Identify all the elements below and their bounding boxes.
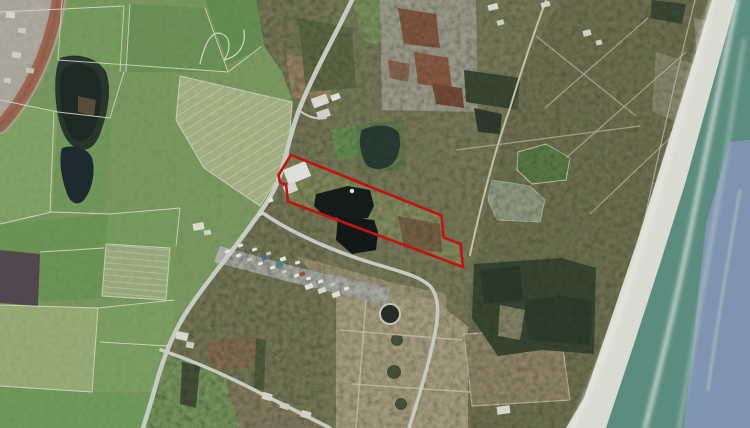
- scrub-patch: [298, 18, 356, 92]
- striped-field-rows: [102, 244, 170, 300]
- dark-tilled-field: [0, 250, 40, 306]
- map-layers: [0, 0, 750, 428]
- aerial-photo-canvas: [0, 0, 750, 428]
- building: [4, 78, 12, 84]
- tree-clump: [395, 398, 407, 410]
- field: [0, 305, 98, 392]
- tilled-plot: [206, 336, 262, 372]
- tree-clump: [391, 334, 403, 346]
- storage-tank: [380, 304, 400, 324]
- tree-clump: [387, 365, 401, 379]
- timber-pile: [398, 8, 440, 48]
- aerial-map-view: [0, 0, 750, 428]
- pine-forest: [524, 296, 592, 345]
- building: [6, 11, 16, 18]
- hedge: [254, 338, 266, 390]
- pond-structure: [350, 189, 354, 193]
- pine-forest: [480, 266, 524, 304]
- building: [12, 51, 22, 58]
